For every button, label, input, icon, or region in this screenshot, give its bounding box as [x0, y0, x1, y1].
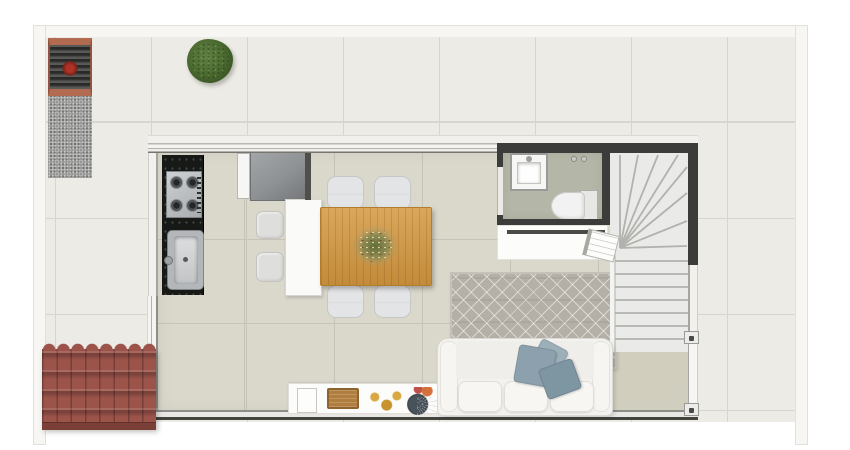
entrance-roof-tiles — [42, 349, 156, 429]
unit-wall-right-dark — [688, 143, 698, 265]
top-wall-ledge — [148, 135, 698, 143]
bathroom-door — [497, 167, 503, 215]
floor-plan-canvas — [0, 0, 850, 450]
cooktop-knobs — [197, 177, 201, 213]
washbasin — [510, 153, 548, 191]
red-flower — [61, 61, 79, 76]
gas-cooktop — [166, 171, 202, 218]
stair-slab — [610, 153, 688, 352]
sofa — [438, 339, 612, 415]
winder-staircase — [610, 153, 688, 352]
flower-vase — [407, 387, 435, 415]
bathroom-accessory — [571, 156, 577, 162]
burner — [170, 199, 183, 212]
stool — [256, 252, 284, 282]
door-hinge — [684, 331, 699, 344]
bathroom-wall-bottom — [497, 219, 608, 225]
sofa-cushion — [458, 381, 502, 412]
dining-chair — [374, 176, 411, 210]
sofa-arm — [592, 341, 610, 412]
island-counter — [285, 199, 322, 296]
gold-decor — [368, 389, 402, 412]
bathroom-wall-right — [602, 153, 610, 225]
pergola — [48, 38, 92, 96]
stool — [256, 211, 284, 239]
toilet-bowl — [551, 192, 585, 220]
washbasin-bowl — [517, 162, 541, 184]
bathroom-accessory — [581, 156, 587, 162]
bathroom-wall-left — [497, 153, 503, 167]
sink-bowl — [174, 236, 198, 284]
door-hinge — [684, 403, 699, 416]
tall-cabinet-door — [237, 153, 250, 199]
sink-faucet — [164, 256, 173, 265]
unit-wall-top-dark — [497, 143, 698, 153]
burner — [170, 176, 183, 189]
right-door — [689, 344, 697, 403]
white-tray — [297, 388, 317, 413]
dining-chair — [327, 285, 364, 318]
kitchen-sink — [167, 230, 204, 290]
plot-wall-right — [795, 25, 808, 445]
stair-stringer — [610, 248, 615, 352]
washbasin-faucet — [526, 156, 532, 162]
refrigerator — [250, 152, 307, 201]
gravel-strip — [48, 96, 92, 178]
dining-chair — [327, 176, 364, 210]
top-window-wall — [148, 143, 497, 153]
wood-tray — [327, 388, 359, 409]
table-centerpiece — [352, 225, 398, 267]
dining-chair — [374, 285, 411, 318]
